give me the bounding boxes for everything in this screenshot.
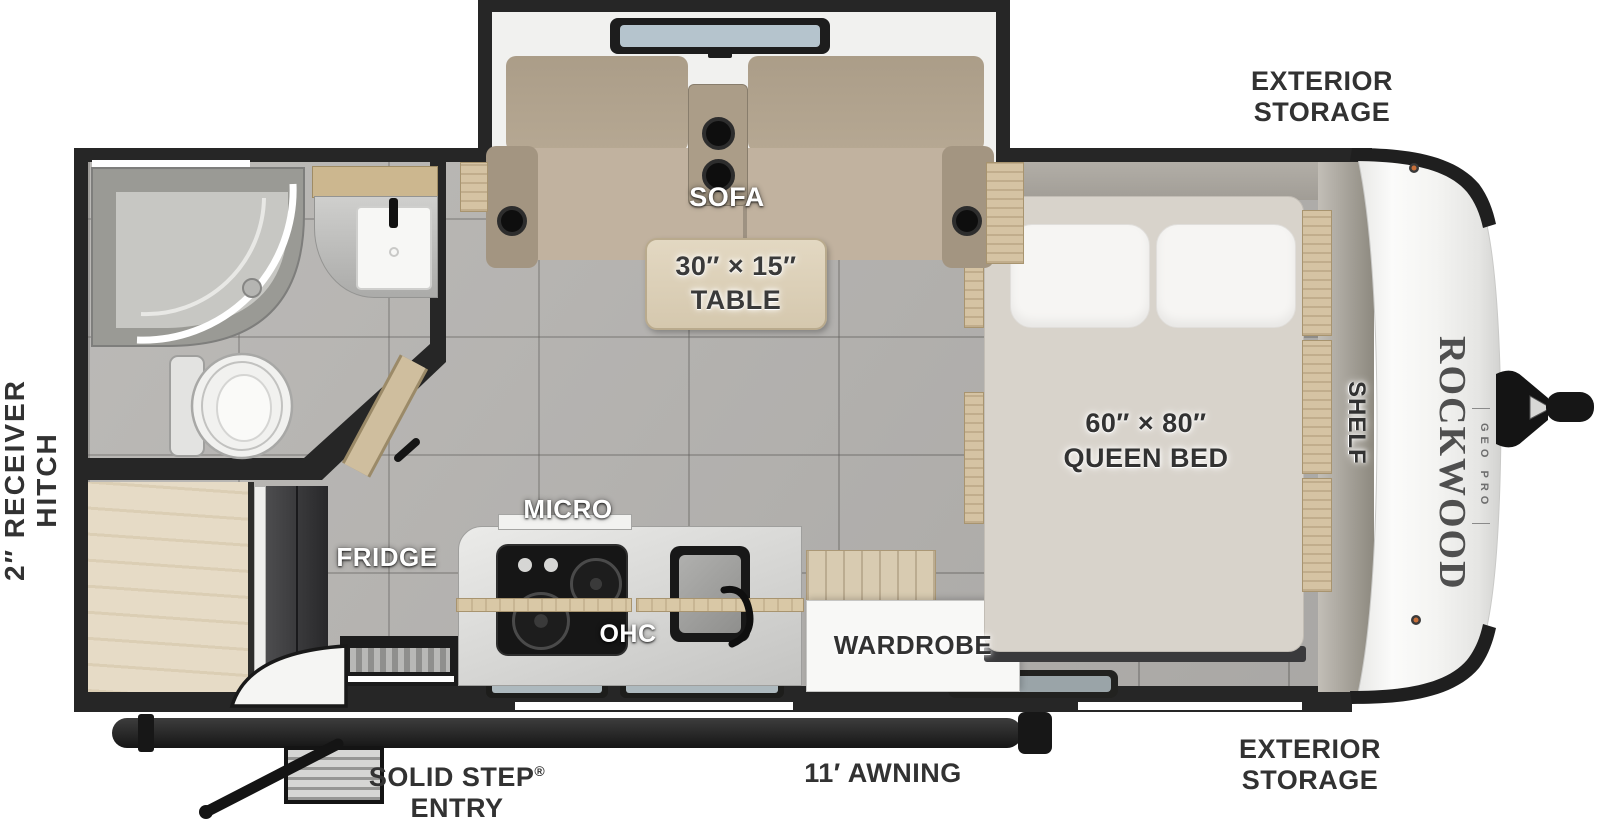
window-strip-bottom-left [515,702,793,710]
registered-mark: ® [534,763,545,779]
sofa-end-table-left [460,162,488,212]
galley-rail [456,598,632,612]
stove-knob-2 [544,558,558,572]
exterior-storage-label-bottom: EXTERIOR STORAGE [1210,734,1410,797]
ohc-label: OHC [588,620,668,649]
entry-step-well [340,636,462,686]
wardrobe-label: WARDROBE [806,630,1020,660]
vanity-counter-wood [312,166,438,198]
exterior-storage-label-top: EXTERIOR STORAGE [1222,66,1422,129]
slide-wall-left [478,0,492,162]
brand-logo: ROCKWOOD [1432,336,1474,581]
vanity-sink [356,206,432,290]
micro-label: MICRO [508,494,628,524]
kitchen-sink [670,546,750,642]
armrest-cupholder-left [497,206,527,236]
kitchen-sink-basin [679,555,741,633]
receiver-hitch-label: 2″ RECEIVER HITCH [0,310,61,650]
shelf-label: SHELF [1336,358,1370,488]
entry-steps-foot [199,805,213,819]
awning-bar [112,718,1022,748]
bench [806,550,936,602]
wall-top-right [1010,148,1372,162]
shelf-strip-2 [1302,340,1332,474]
bed-head-band [1010,162,1340,200]
fridge-label: FRIDGE [327,542,447,572]
stove-knob [518,558,532,572]
awning-label: 11′ AWNING [783,758,983,789]
galley-rail-2 [636,598,804,612]
receiver-hitch-label-line2: HITCH [31,310,63,650]
fridge-door-edge [254,486,266,676]
window-strip-bottom-right [1078,702,1302,710]
console-cupholder [702,117,735,150]
bed-label: 60″ × 80″ QUEEN BED [1046,406,1246,476]
awning-endcap-right [1018,712,1052,754]
entry-step-tread-edge [348,676,454,682]
receiver-hitch-label-line1: 2″ RECEIVER [0,310,31,650]
fridge [266,486,328,676]
slide-wall-top [478,0,1010,12]
brand-sub-logo: GEO PRO [1472,408,1490,524]
slide-window-glass [620,25,820,47]
shelf-strip-3 [1302,478,1332,592]
table-label: 30″ × 15″ TABLE [650,250,822,318]
solid-step-label: SOLID STEP® ENTRY [337,762,577,825]
rear-cabinet [88,482,250,692]
sofa-back [506,56,688,152]
slide-window-latch [708,48,732,58]
window-strip-top [92,160,250,168]
bed-rail-2 [964,392,984,524]
hitch-jack [1496,371,1594,448]
pillow-2 [1156,224,1296,328]
fridge-seam [296,486,298,676]
entry-step-treads [350,648,450,672]
sofa-back-2 [748,56,984,152]
shelf-strip [1302,210,1332,336]
pillow [1010,224,1150,328]
sofa-end-table-right [986,162,1024,264]
armrest-cupholder-right [952,206,982,236]
bathroom-wall-bottom [88,458,306,480]
wall-rear-left [74,148,88,706]
clearance-light [1409,163,1419,173]
floorplan-canvas: 2″ RECEIVER HITCH EXTERIOR STORAGE EXTER… [0,0,1600,832]
slide-wall-right [996,0,1010,162]
clearance-light-2 [1411,615,1421,625]
slide-window [610,18,830,54]
sofa-label: SOFA [662,182,792,213]
awning-bracket-left [138,714,154,752]
